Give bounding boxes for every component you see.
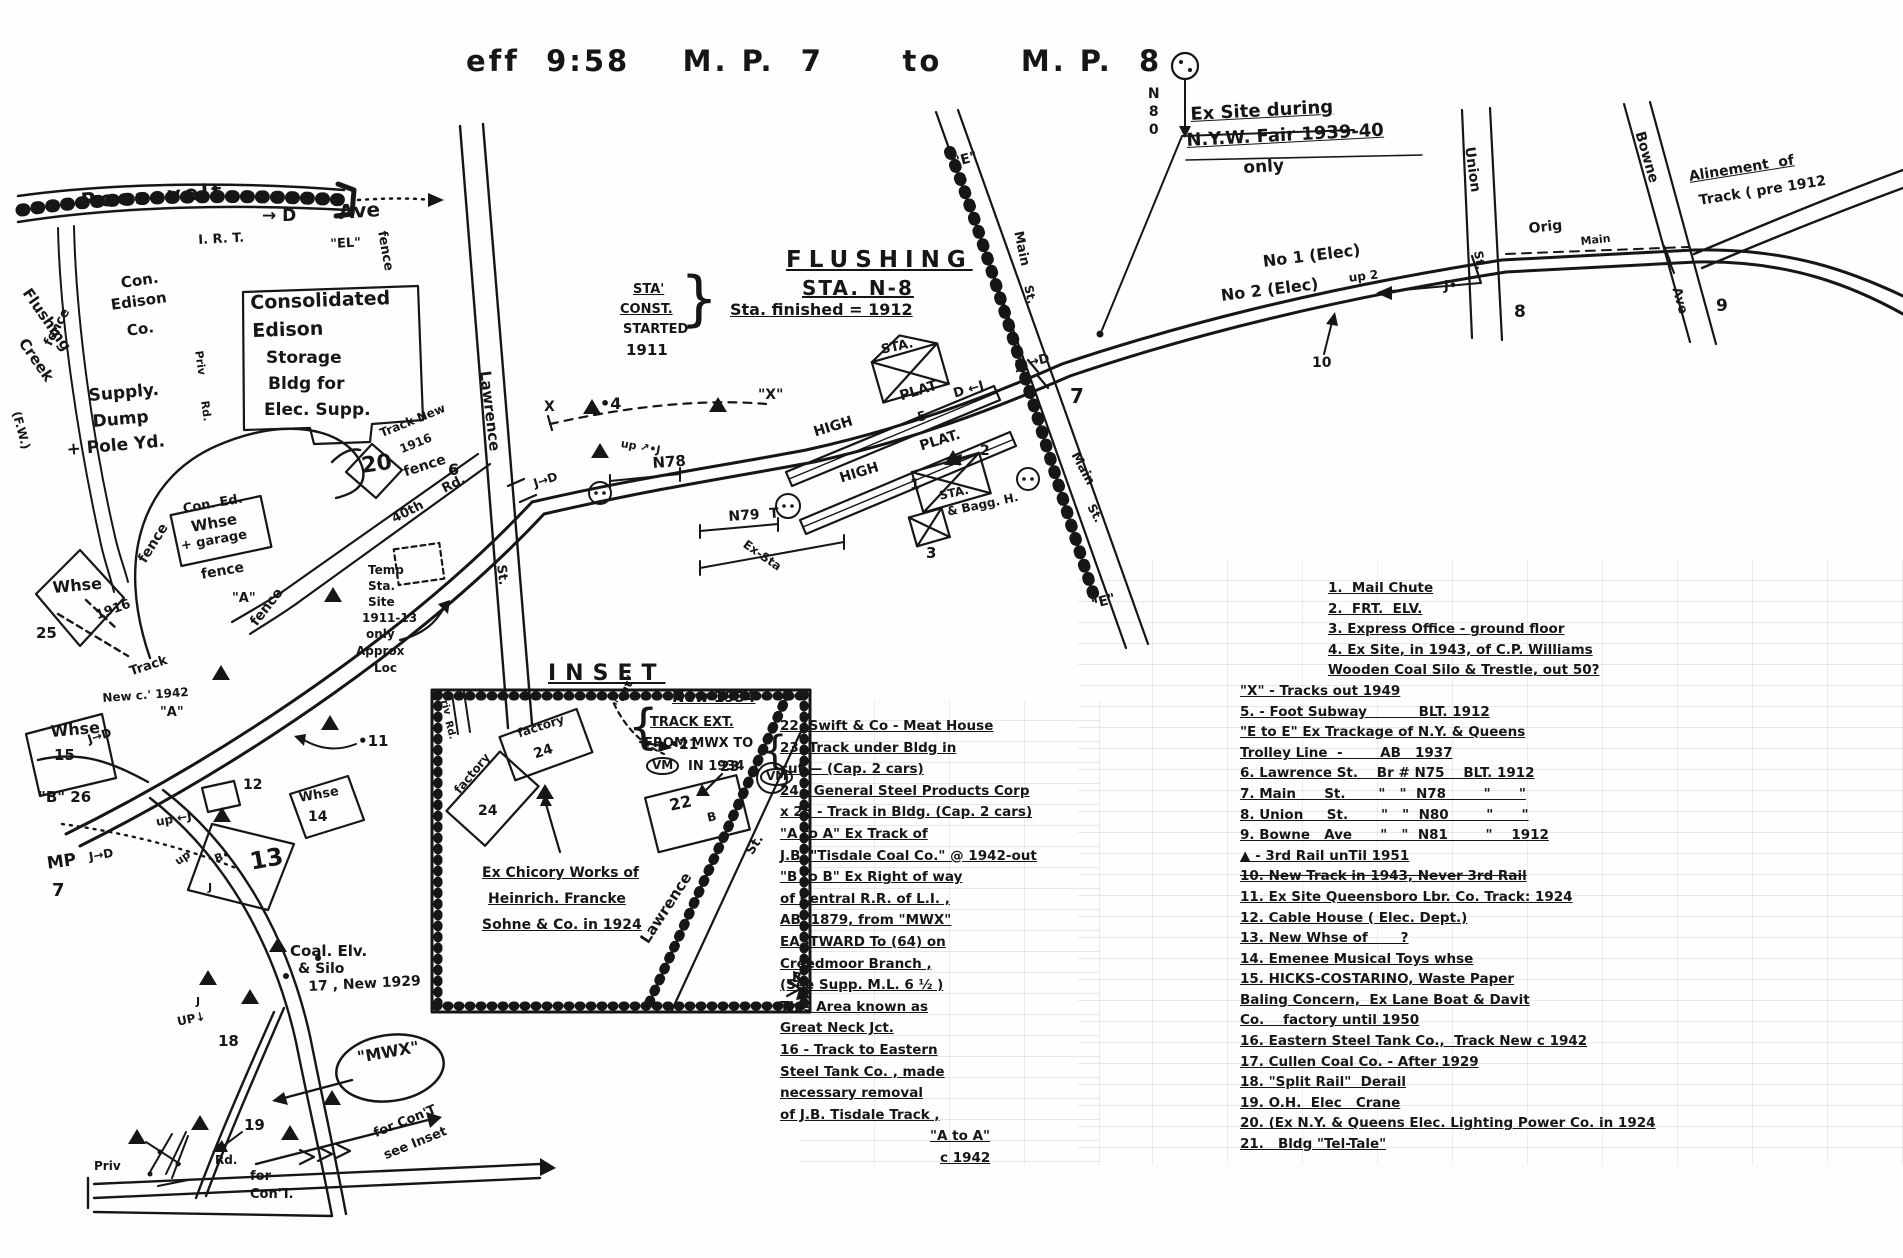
legend-item: 4. Ex Site, in 1943, of C.P. Williams	[1328, 640, 1903, 661]
legend-item: Co. factory until 1950	[1240, 1010, 1903, 1031]
track-map-sheet: eff 9:58 M. P. 7 to M. P. 8 Ex Site duri…	[0, 0, 1903, 1258]
priv-bottom: Priv	[94, 1160, 121, 1173]
milepost-7: 7	[52, 882, 65, 901]
legend-item: 5. - Foot Subway BLT. 1912	[1240, 702, 1903, 723]
inset-chicory-2: Heinrich. Francke	[488, 892, 626, 907]
temp-sta-6: Approx	[356, 645, 404, 658]
note-line: necessary removal	[780, 1083, 1092, 1105]
legend-item: 9. Bowne Ave " " N81 " 1912	[1240, 825, 1903, 846]
note-line: 23. Track under Bldg in	[780, 738, 1092, 760]
temp-sta-3: Site	[368, 596, 395, 609]
number-12: 12	[243, 778, 262, 793]
bridge-n80-label: N80	[1146, 86, 1161, 140]
note-ext-1: TRACK EXT.	[650, 716, 734, 730]
number-19: 19	[244, 1118, 265, 1134]
whse-15-number: 15	[54, 748, 75, 764]
j-small-2: J	[196, 996, 200, 1008]
whse-25-number: 25	[36, 626, 57, 642]
note-line: cut — (Cap. 2 cars)	[780, 759, 1092, 781]
bridge-8-number: 8	[1514, 304, 1526, 322]
sta-const-4: 1911	[626, 343, 668, 359]
exsite-line3: only	[1243, 158, 1285, 178]
dashed-siding-x-to-x	[548, 402, 766, 430]
legend-item: "E to E" Ex Trackage of N.Y. & Queens	[1240, 722, 1903, 743]
legend-item: Wooden Coal Silo & Trestle, out 50?	[1328, 660, 1903, 681]
yard-sidings-and-branch	[38, 429, 556, 1216]
page-title: eff 9:58 M. P. 7 to M. P. 8	[466, 46, 1162, 76]
inset-23-number: 23	[720, 760, 739, 775]
temp-sta-4: 1911-13	[362, 612, 417, 625]
inset-chicory-3: Sohne & Co. in 1924	[482, 918, 642, 933]
trolley-line-e	[950, 152, 1096, 602]
note-line: "A to A" Ex Track of	[780, 824, 1092, 846]
legend-item: 20. (Ex N.Y. & Queens Elec. Lighting Pow…	[1240, 1113, 1903, 1134]
note-line: of Central R.R. of L.I. ,	[780, 889, 1092, 911]
note-line: 22. Swift & Co - Meat House	[780, 716, 1092, 738]
legend-item: 13. New Whse of ?	[1240, 928, 1903, 949]
number-11: •11	[358, 734, 388, 750]
temp-sta-2: Sta.	[368, 580, 395, 593]
inset-factory-2-number: 24	[478, 804, 497, 819]
inset-21-number: •21	[670, 738, 698, 753]
point-a-label-1: "A"	[232, 592, 256, 606]
station-number-2: 2	[980, 444, 990, 459]
legend-item: 11. Ex Site Queensboro Lbr. Co. Track: 1…	[1240, 887, 1903, 908]
note-new-1934: New 1934	[672, 690, 756, 706]
legend-item: 17. Cullen Coal Co. - After 1929	[1240, 1052, 1903, 1073]
signals-and-flags	[589, 468, 1039, 575]
note-line: AB. 1879, from "MWX"	[780, 910, 1092, 932]
legend-item: 16. Eastern Steel Tank Co., Track New c …	[1240, 1031, 1903, 1052]
note-vm-circle: VM	[646, 757, 679, 775]
note-line: x 25 - Track in Bldg. (Cap. 2 cars)	[780, 802, 1092, 824]
point-a-label-2: "A"	[160, 706, 184, 720]
legend-item: 18. "Split Rail" Derail	[1240, 1072, 1903, 1093]
station-number-3: 3	[926, 546, 936, 562]
note-line: J.B. "Tisdale Coal Co." @ 1942-out	[780, 846, 1092, 868]
sta-finished: Sta. finished = 1912	[730, 302, 913, 319]
for-cont-1a: for	[250, 1170, 271, 1184]
station-number-1: 1	[910, 478, 920, 493]
note-line: (See Supp. M.L. 6 ½ )	[780, 975, 1092, 997]
note-line: of J.B. Tisdale Track ,	[780, 1105, 1092, 1127]
temp-sta-5: only	[366, 628, 395, 641]
note-line: 16 - Track to Eastern	[780, 1040, 1092, 1062]
el-direction-d: → D	[262, 208, 296, 226]
note-line: Steel Tank Co. , made	[780, 1062, 1092, 1084]
number-18: 18	[218, 1034, 239, 1050]
consolidated-2: Edison	[252, 320, 324, 342]
coal-elv-1: Coal. Elv.	[290, 944, 367, 960]
priv-rd-left-2: Rd.	[199, 400, 213, 422]
legend-item: Trolley Line - AB 1937	[1240, 743, 1903, 764]
note-line: EASTWARD To (64) on	[780, 932, 1092, 954]
ref-10-label: 10	[1312, 356, 1331, 371]
orig-main-1: Orig	[1528, 218, 1563, 236]
milepost-mp: MP	[46, 852, 78, 874]
bridge-7-number: 7	[1070, 386, 1084, 407]
legend-item: ▲ - 3rd Rail unTil 1951	[1240, 846, 1903, 867]
inset-chicory-1: Ex Chicory Works of	[482, 866, 639, 881]
j-dot-union: J•	[1444, 280, 1457, 294]
building-20-number: 20	[360, 451, 394, 478]
legend-item: 8. Union St. " " N80 " "	[1240, 805, 1903, 826]
note-line: Great Neck Jct.	[780, 1018, 1092, 1040]
orig-main-2: Main	[1580, 233, 1611, 248]
legend-list: 1. Mail Chute 2. FRT. ELV. 3. Express Of…	[1240, 578, 1903, 1155]
inset-b-2: B	[792, 972, 802, 986]
bridge-9-number: 9	[1716, 298, 1728, 316]
consolidated-3: Storage	[266, 350, 342, 368]
rd-bottom: Rd.	[215, 1154, 237, 1167]
note-line: Creedmoor Branch ,	[780, 954, 1092, 976]
note-line: "A to A"	[930, 1126, 1092, 1148]
legend-item: 2. FRT. ELV.	[1328, 599, 1903, 620]
legend-item: 19. O.H. Elec Crane	[1240, 1093, 1903, 1114]
con-edison-3: Co.	[126, 320, 155, 339]
el-label: "EL"	[330, 236, 361, 251]
legend-item-struck: 10. New Track in 1943, Never 3rd Rail	[1240, 866, 1903, 887]
whse-14-number: 14	[308, 810, 327, 825]
legend-item: "X" - Tracks out 1949	[1240, 681, 1903, 702]
inset-title: INSET	[548, 662, 665, 685]
for-cont-1b: Con'T.	[250, 1188, 294, 1202]
legend-item: 14. Emenee Musical Toys whse	[1240, 949, 1903, 970]
legend-item: 12. Cable House ( Elec. Dept.)	[1240, 908, 1903, 929]
sta-const-3: STARTED	[623, 323, 688, 337]
lawrence-st-st: St.	[493, 564, 509, 586]
temp-sta-7: Loc	[374, 662, 397, 675]
legend-item: 1. Mail Chute	[1328, 578, 1903, 599]
siding-4: •4	[600, 396, 621, 413]
flushing-title: FLUSHING	[786, 248, 973, 272]
temp-sta-1: Temp	[368, 564, 404, 577]
sta-n8: STA. N-8	[802, 278, 914, 299]
legend-item: 15. HICKS-COSTARINO, Waste Paper	[1240, 969, 1903, 990]
coal-elv-2: & Silo	[298, 962, 344, 977]
consolidated-4: Bldg for	[268, 376, 345, 394]
note-ext-2: FROM MWX TO	[644, 737, 753, 751]
note-line: c 1942	[940, 1148, 1092, 1170]
priv-rd-left-1: Priv	[193, 350, 208, 376]
roosevelt-ave-label: Ave	[338, 199, 381, 223]
signal-n79: N79 T	[728, 506, 779, 524]
sta-const-1: STA'	[633, 283, 664, 297]
mwx-ellipse	[332, 1028, 448, 1108]
consolidated-5: Elec. Supp.	[264, 402, 371, 420]
point-b-26: "B" 26	[38, 790, 91, 806]
sta-const-brace: }	[680, 268, 718, 331]
legend-item: 21. Bldg "Tel-Tale"	[1240, 1134, 1903, 1155]
note-line: "B to B" Ex Right of way	[780, 867, 1092, 889]
signal-n78: N78	[652, 454, 686, 472]
sta-const-2: CONST.	[620, 303, 673, 317]
legend-item: Baling Concern, Ex Lane Boat & Davit	[1240, 990, 1903, 1011]
inset-vm-circle: VM	[760, 768, 793, 786]
siding-x-right: "X"	[758, 388, 783, 403]
legend-item: 6. Lawrence St. Br # N75 BLT. 1912	[1240, 763, 1903, 784]
number-13: 13	[248, 844, 285, 875]
main-st-upper-2: St.	[1022, 284, 1038, 305]
j-small-1: J	[208, 882, 212, 894]
siding-x-left: X	[544, 400, 555, 415]
notes-column: 22. Swift & Co - Meat House 23. Track un…	[780, 716, 1092, 1169]
legend-item: 7. Main St. " " N78 " "	[1240, 784, 1903, 805]
legend-item: 3. Express Office - ground floor	[1328, 619, 1903, 640]
note-line: This Area known as	[780, 997, 1092, 1019]
union-street	[1462, 108, 1502, 340]
irt-label: I. R. T.	[198, 232, 245, 248]
union-st-st: St.	[1472, 250, 1487, 271]
note-line: 24 - General Steel Products Corp	[780, 781, 1092, 803]
